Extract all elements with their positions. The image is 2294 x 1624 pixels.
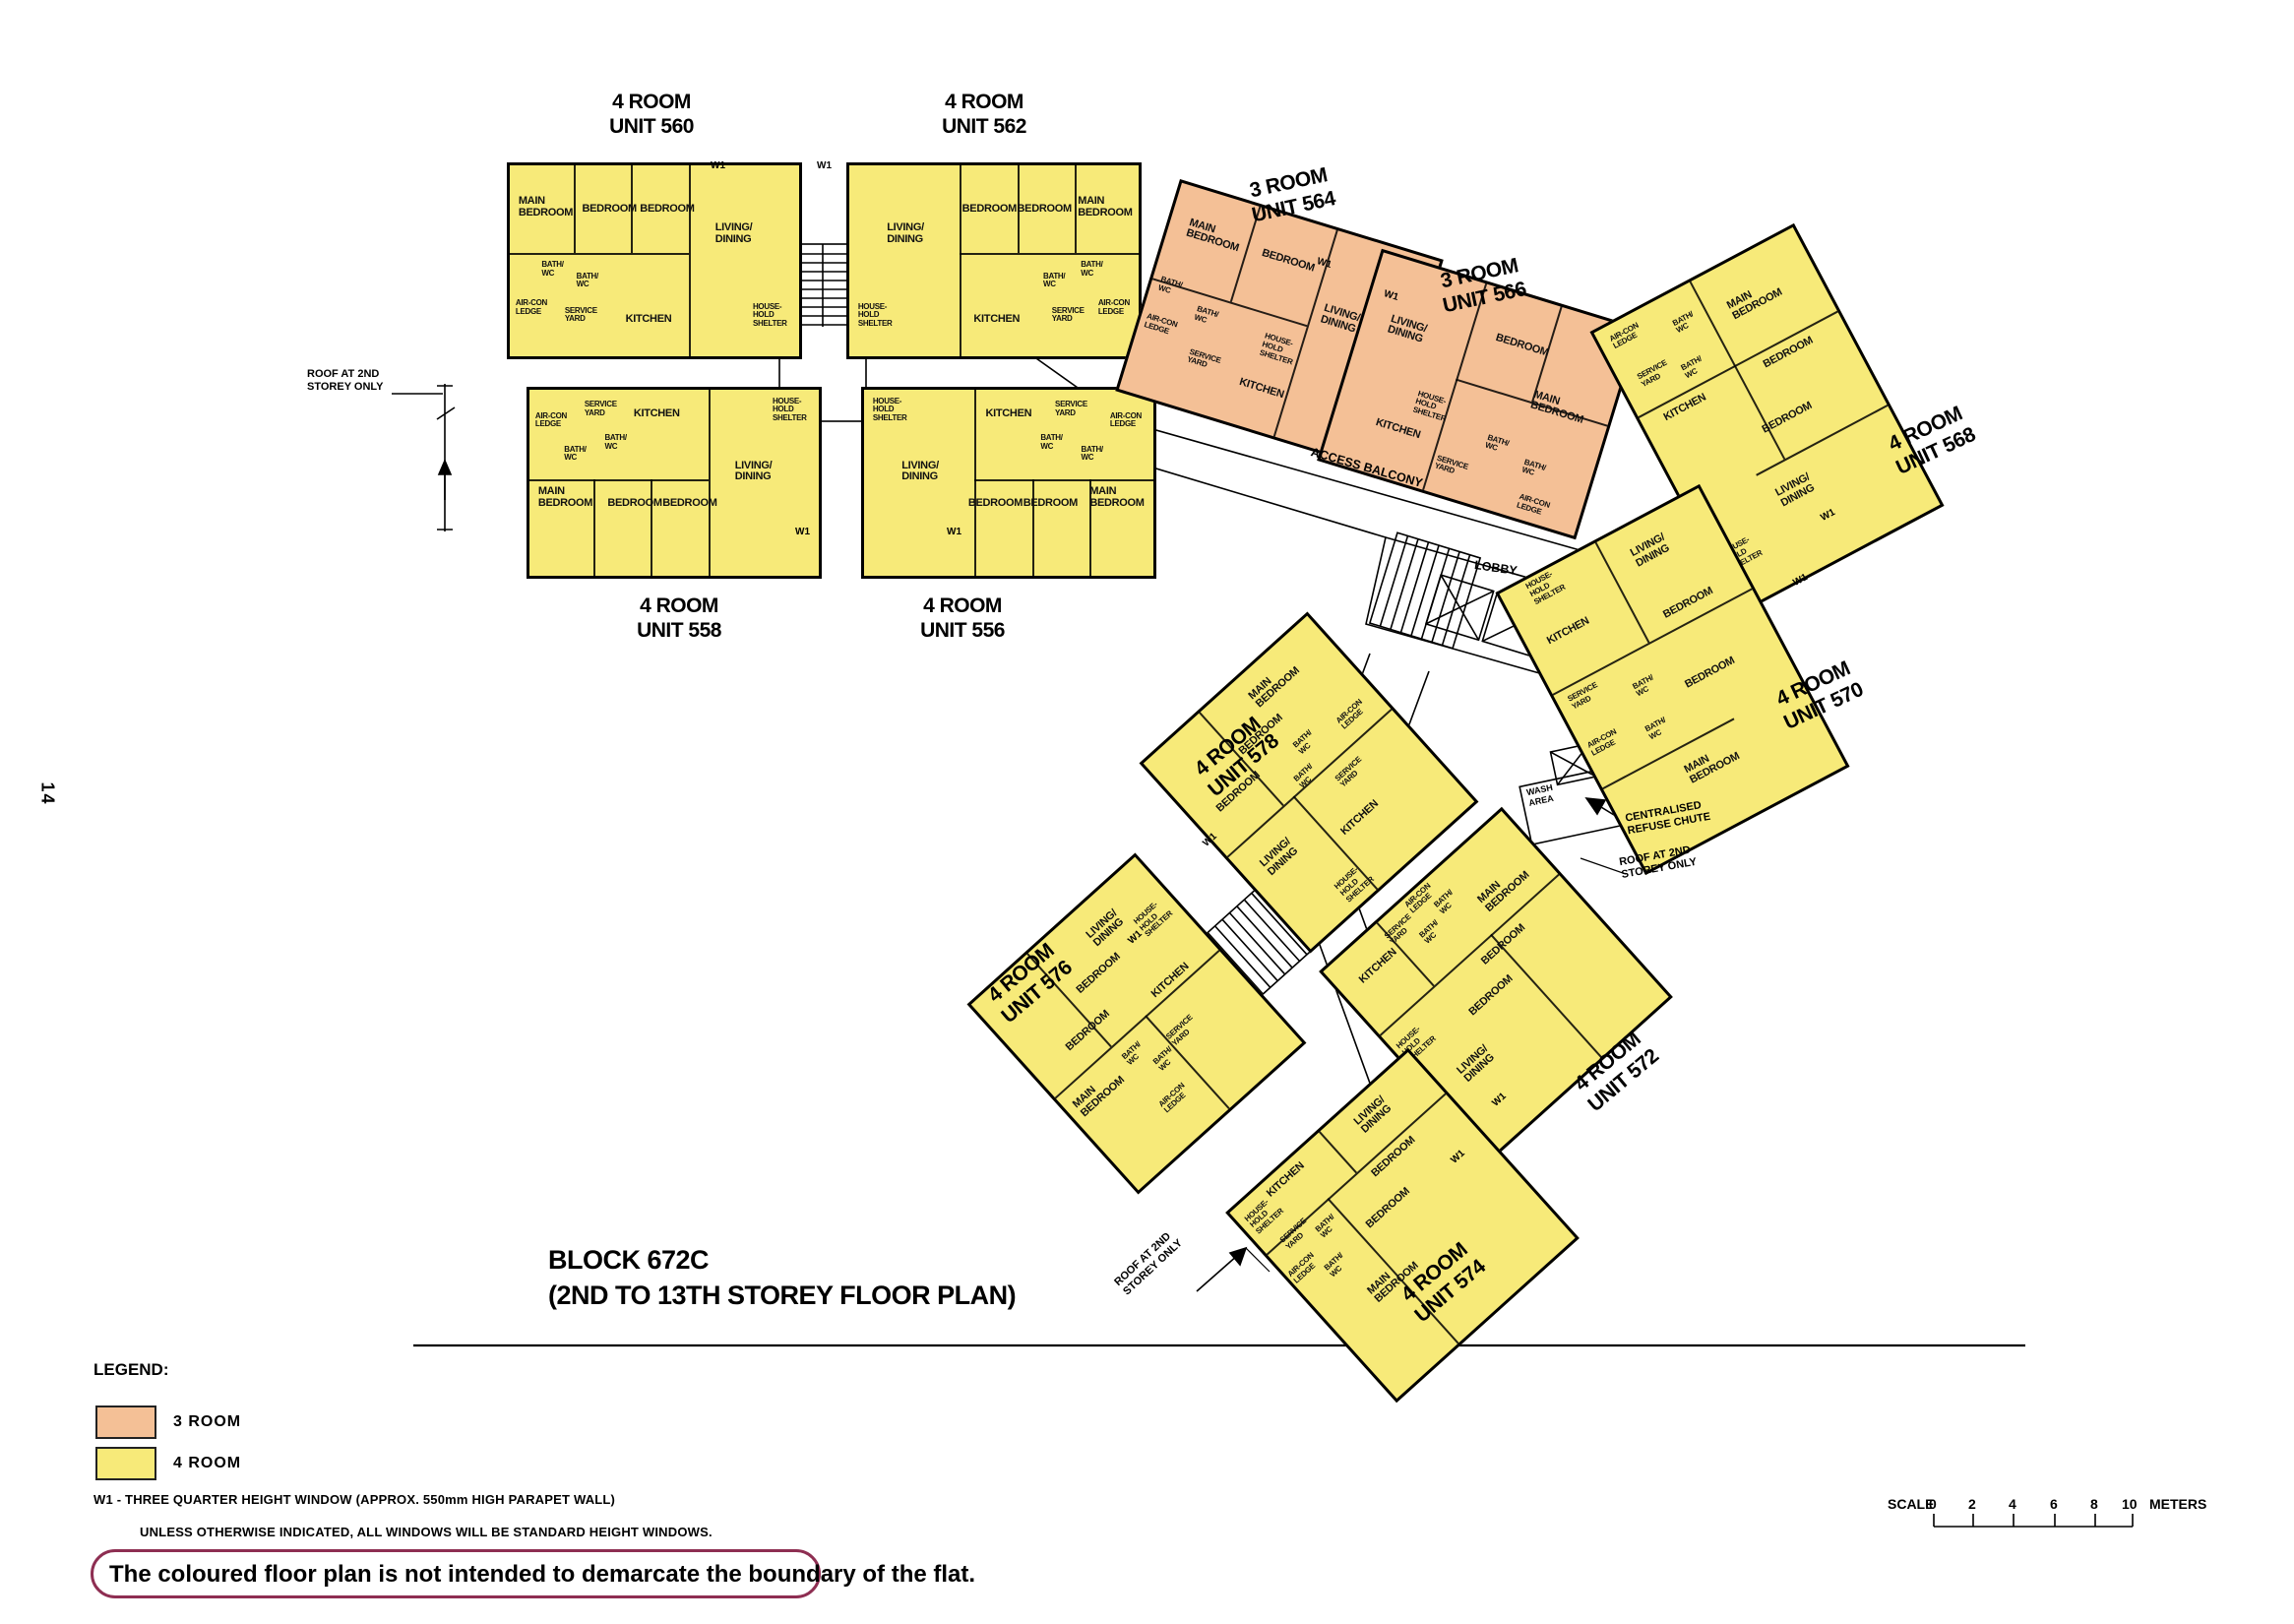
disclaimer-note: The coloured floor plan is not intended … [91,1549,821,1598]
room-label: BATH/ WC [541,261,569,279]
room-label: KITCHEN [1374,417,1434,446]
room-label: SERVICE YARD [1637,357,1678,390]
scale-tick: 8 [2090,1496,2098,1512]
legend-swatch-4room [95,1447,156,1480]
room-label: BATH/ WC [1292,759,1325,790]
wall [1075,165,1077,253]
room-label: SERVICE YARD [1186,347,1226,375]
room-label: BEDROOM [583,204,634,216]
staircase [1370,532,1480,649]
room-label: BEDROOM [1684,656,1734,691]
room-label: BEDROOM [1494,333,1546,358]
wall [689,165,691,356]
w1-window-tag: W1 [817,160,832,171]
unit-number: UNIT 556 [884,619,1041,644]
scale-tick: 10 [2122,1496,2138,1512]
wall [1319,1131,1357,1173]
unit-number: UNIT 560 [573,115,730,140]
room-label: BEDROOM [1018,204,1069,216]
room-label: HOUSE- HOLD SHELTER [753,303,786,329]
drawing-title: BLOCK 672C (2ND TO 13TH STOREY FLOOR PLA… [548,1242,1016,1314]
room-label: MAIN BEDROOM [1078,196,1137,219]
room-label: BATH/ WC [1157,276,1189,300]
room-label: BEDROOM [640,204,691,216]
room-label: KITCHEN [1238,377,1298,406]
room-label: AIR-CON LEDGE [535,412,573,430]
room-label: BEDROOM [662,498,713,510]
wall [960,165,961,356]
room-label: BEDROOM [1762,337,1812,371]
wall [1491,934,1603,1058]
roof-note-leader-bottom [1197,1248,1270,1291]
room-label: HOUSE- HOLD SHELTER [1243,1195,1285,1236]
scale-tick: 2 [1968,1496,1976,1512]
scale-label: SCALE [1888,1496,1934,1512]
unit-title-560: 4 ROOMUNIT 560 [573,91,730,140]
room-label: MAIN BEDROOM [1683,739,1746,787]
room-label: AIR-CON LEDGE [1334,694,1374,732]
wall [1032,479,1034,576]
room-label: AIR-CON LEDGE [1608,319,1649,351]
room-label: LIVING/ DINING [1352,1088,1402,1136]
scale-bar-line [1934,1514,2133,1527]
room-label: BEDROOM [1370,1137,1415,1179]
w1-definition-note: W1 - THREE QUARTER HEIGHT WINDOW (APPROX… [93,1492,615,1507]
room-label: BATH/ WC [1520,458,1552,482]
room-label: BEDROOM [968,498,1020,510]
room-label: SERVICE YARD [1055,401,1092,418]
room-label: HOUSE- HOLD SHELTER [1259,333,1298,367]
room-label: BEDROOM [1364,1188,1409,1230]
room-label: HOUSE- HOLD SHELTER [1524,568,1566,606]
room-label: MAIN BEDROOM [538,486,597,509]
room-label: BEDROOM [1260,248,1312,274]
room-label: BATH/ WC [1484,433,1516,458]
scale-tick: 6 [2050,1496,2058,1512]
room-label: MAIN BEDROOM [1529,389,1592,428]
unit-type: 4 ROOM [905,91,1063,115]
room-label: BATH/ WC [1644,714,1677,742]
room-label: KITCHEN [1662,386,1719,423]
room-label: KITCHEN [985,408,1044,420]
room-label: AIR-CON LEDGE [1157,1078,1197,1116]
unit-title-556: 4 ROOMUNIT 556 [884,594,1041,644]
room-label: KITCHEN [1339,789,1391,838]
room-label: HOUSE- HOLD SHELTER [873,398,906,423]
arrowhead [1586,798,1605,814]
room-label: SERVICE YARD [1333,752,1373,790]
room-label: BEDROOM [607,498,658,510]
dimension-lines [392,384,455,531]
unit-type: 4 ROOM [573,91,730,115]
room-label: BATH/ WC [604,434,632,452]
room-label: BEDROOM [1761,402,1811,436]
unit-number: UNIT 558 [600,619,758,644]
room-label: SERVICE YARD [1052,307,1089,325]
room-label: MAIN BEDROOM [1476,858,1535,914]
room-label: KITCHEN [973,314,1032,326]
room-label: AIR-CON LEDGE [516,299,553,317]
room-label: LIVING/ DINING [887,222,934,245]
roof-note: ROOF AT 2ND STOREY ONLY [307,368,398,394]
unit-title-558: 4 ROOMUNIT 558 [600,594,758,644]
room-label: LIVING/ DINING [1774,468,1827,510]
room-label: HOUSE- HOLD SHELTER [773,398,806,423]
room-label: AIR-CON LEDGE [1286,1247,1326,1285]
room-label: LIVING/ DINING [1259,830,1309,878]
room-label: BATH/ WC [1193,305,1224,330]
wall [960,253,1139,255]
unit-number: UNIT 562 [905,115,1063,140]
room-label: LIVING/ DINING [901,461,949,483]
w1-window-tag: W1 [795,527,810,537]
plan-linework [0,0,2294,1624]
room-label: BATH/ WC [1680,352,1712,381]
unit-556: KITCHEN SERVICE YARD AIR-CON LEDGE BATH/… [861,387,1156,579]
room-label: HOUSE- HOLD SHELTER [1411,390,1451,424]
room-label: BATH/ WC [1081,261,1108,279]
room-label: BATH/ WC [564,446,591,464]
room-label: BATH/ WC [577,273,604,290]
room-label: BATH/ WC [1082,446,1109,464]
wall [529,479,709,481]
scale-tick: 4 [2009,1496,2016,1512]
room-label: SERVICE YARD [1279,1214,1319,1252]
room-label: KITCHEN [1357,938,1408,986]
room-label: BATH/ WC [1151,1042,1184,1074]
room-label: BEDROOM [1023,498,1075,510]
block-name: BLOCK 672C [548,1242,1016,1278]
room-label: SERVICE YARD [1165,1010,1205,1048]
room-label: BEDROOM [1479,924,1524,967]
room-label: BATH/ WC [1418,915,1451,947]
room-label: MAIN BEDROOM [1072,1063,1131,1119]
room-label: MAIN BEDROOM [519,196,578,219]
room-label: LIVING/ DINING [735,461,782,483]
room-label: HOUSE- HOLD SHELTER [858,303,892,329]
room-label: BEDROOM [1661,587,1711,621]
unit-title-562: 4 ROOMUNIT 562 [905,91,1063,140]
room-label: KITCHEN [1149,953,1201,1001]
room-label: SERVICE YARD [565,307,602,325]
legend-heading: LEGEND: [93,1360,169,1380]
window-height-note: UNLESS OTHERWISE INDICATED, ALL WINDOWS … [140,1525,713,1539]
room-label: BEDROOM [1467,975,1513,1018]
room-label: LIVING/ DINING [1629,528,1681,570]
storey-range: (2ND TO 13TH STOREY FLOOR PLAN) [548,1278,1016,1313]
legend-label-3room: 3 ROOM [173,1413,241,1431]
legend-label-4room: 4 ROOM [173,1455,241,1472]
scale-tick: 0 [1929,1496,1937,1512]
unit-type: 4 ROOM [884,594,1041,619]
room-label: BATH/ WC [1121,1036,1153,1068]
room-label: KITCHEN [626,314,685,326]
unit-type: 4 ROOM [600,594,758,619]
room-label: KITCHEN [634,408,693,420]
floor-plan-page: { "page": { "number": "14" }, "title": {… [0,0,2294,1624]
w1-window-tag: W1 [947,527,961,537]
room-label: AIR-CON LEDGE [1143,312,1183,340]
room-label: BATH/ WC [1632,671,1664,700]
room-label: SERVICE YARD [1433,454,1473,481]
unit-562: LIVING/ DINING BEDROOM BEDROOM MAIN BEDR… [846,162,1142,359]
room-label: SERVICE YARD [585,401,622,418]
room-label: AIR-CON LEDGE [1110,412,1147,430]
wall [974,479,1153,481]
room-label: MAIN BEDROOM [1089,486,1148,509]
room-label: LIVING/ DINING [1456,1036,1506,1085]
room-label: AIR-CON LEDGE [1516,493,1556,521]
room-label: LIVING/ DINING [715,222,763,245]
room-label: BATH/ WC [1671,307,1704,336]
scale-unit: METERS [2149,1496,2206,1512]
wall [651,479,652,576]
room-label: BATH/ WC [1040,434,1068,452]
room-label: AIR-CON LEDGE [1586,725,1628,758]
unit-560: MAIN BEDROOM BEDROOM BEDROOM LIVING/ DIN… [507,162,802,359]
room-label: KITCHEN [1545,609,1602,647]
legend-swatch-3room [95,1405,156,1439]
room-label: BEDROOM [962,204,1014,216]
unit-558: AIR-CON LEDGE SERVICE YARD KITCHEN BATH/… [527,387,822,579]
w1-window-tag: W1 [711,160,725,171]
page-number: 14 [37,781,58,805]
room-label: HOUSE- HOLD SHELTER [1333,863,1376,905]
room-label: AIR-CON LEDGE [1098,299,1136,317]
wall [709,390,711,576]
room-label: MAIN BEDROOM [1725,275,1788,323]
wall [974,390,976,576]
wall [510,253,689,255]
room-label: BATH/ WC [1043,273,1071,290]
room-label: BATH/ WC [1323,1248,1355,1280]
